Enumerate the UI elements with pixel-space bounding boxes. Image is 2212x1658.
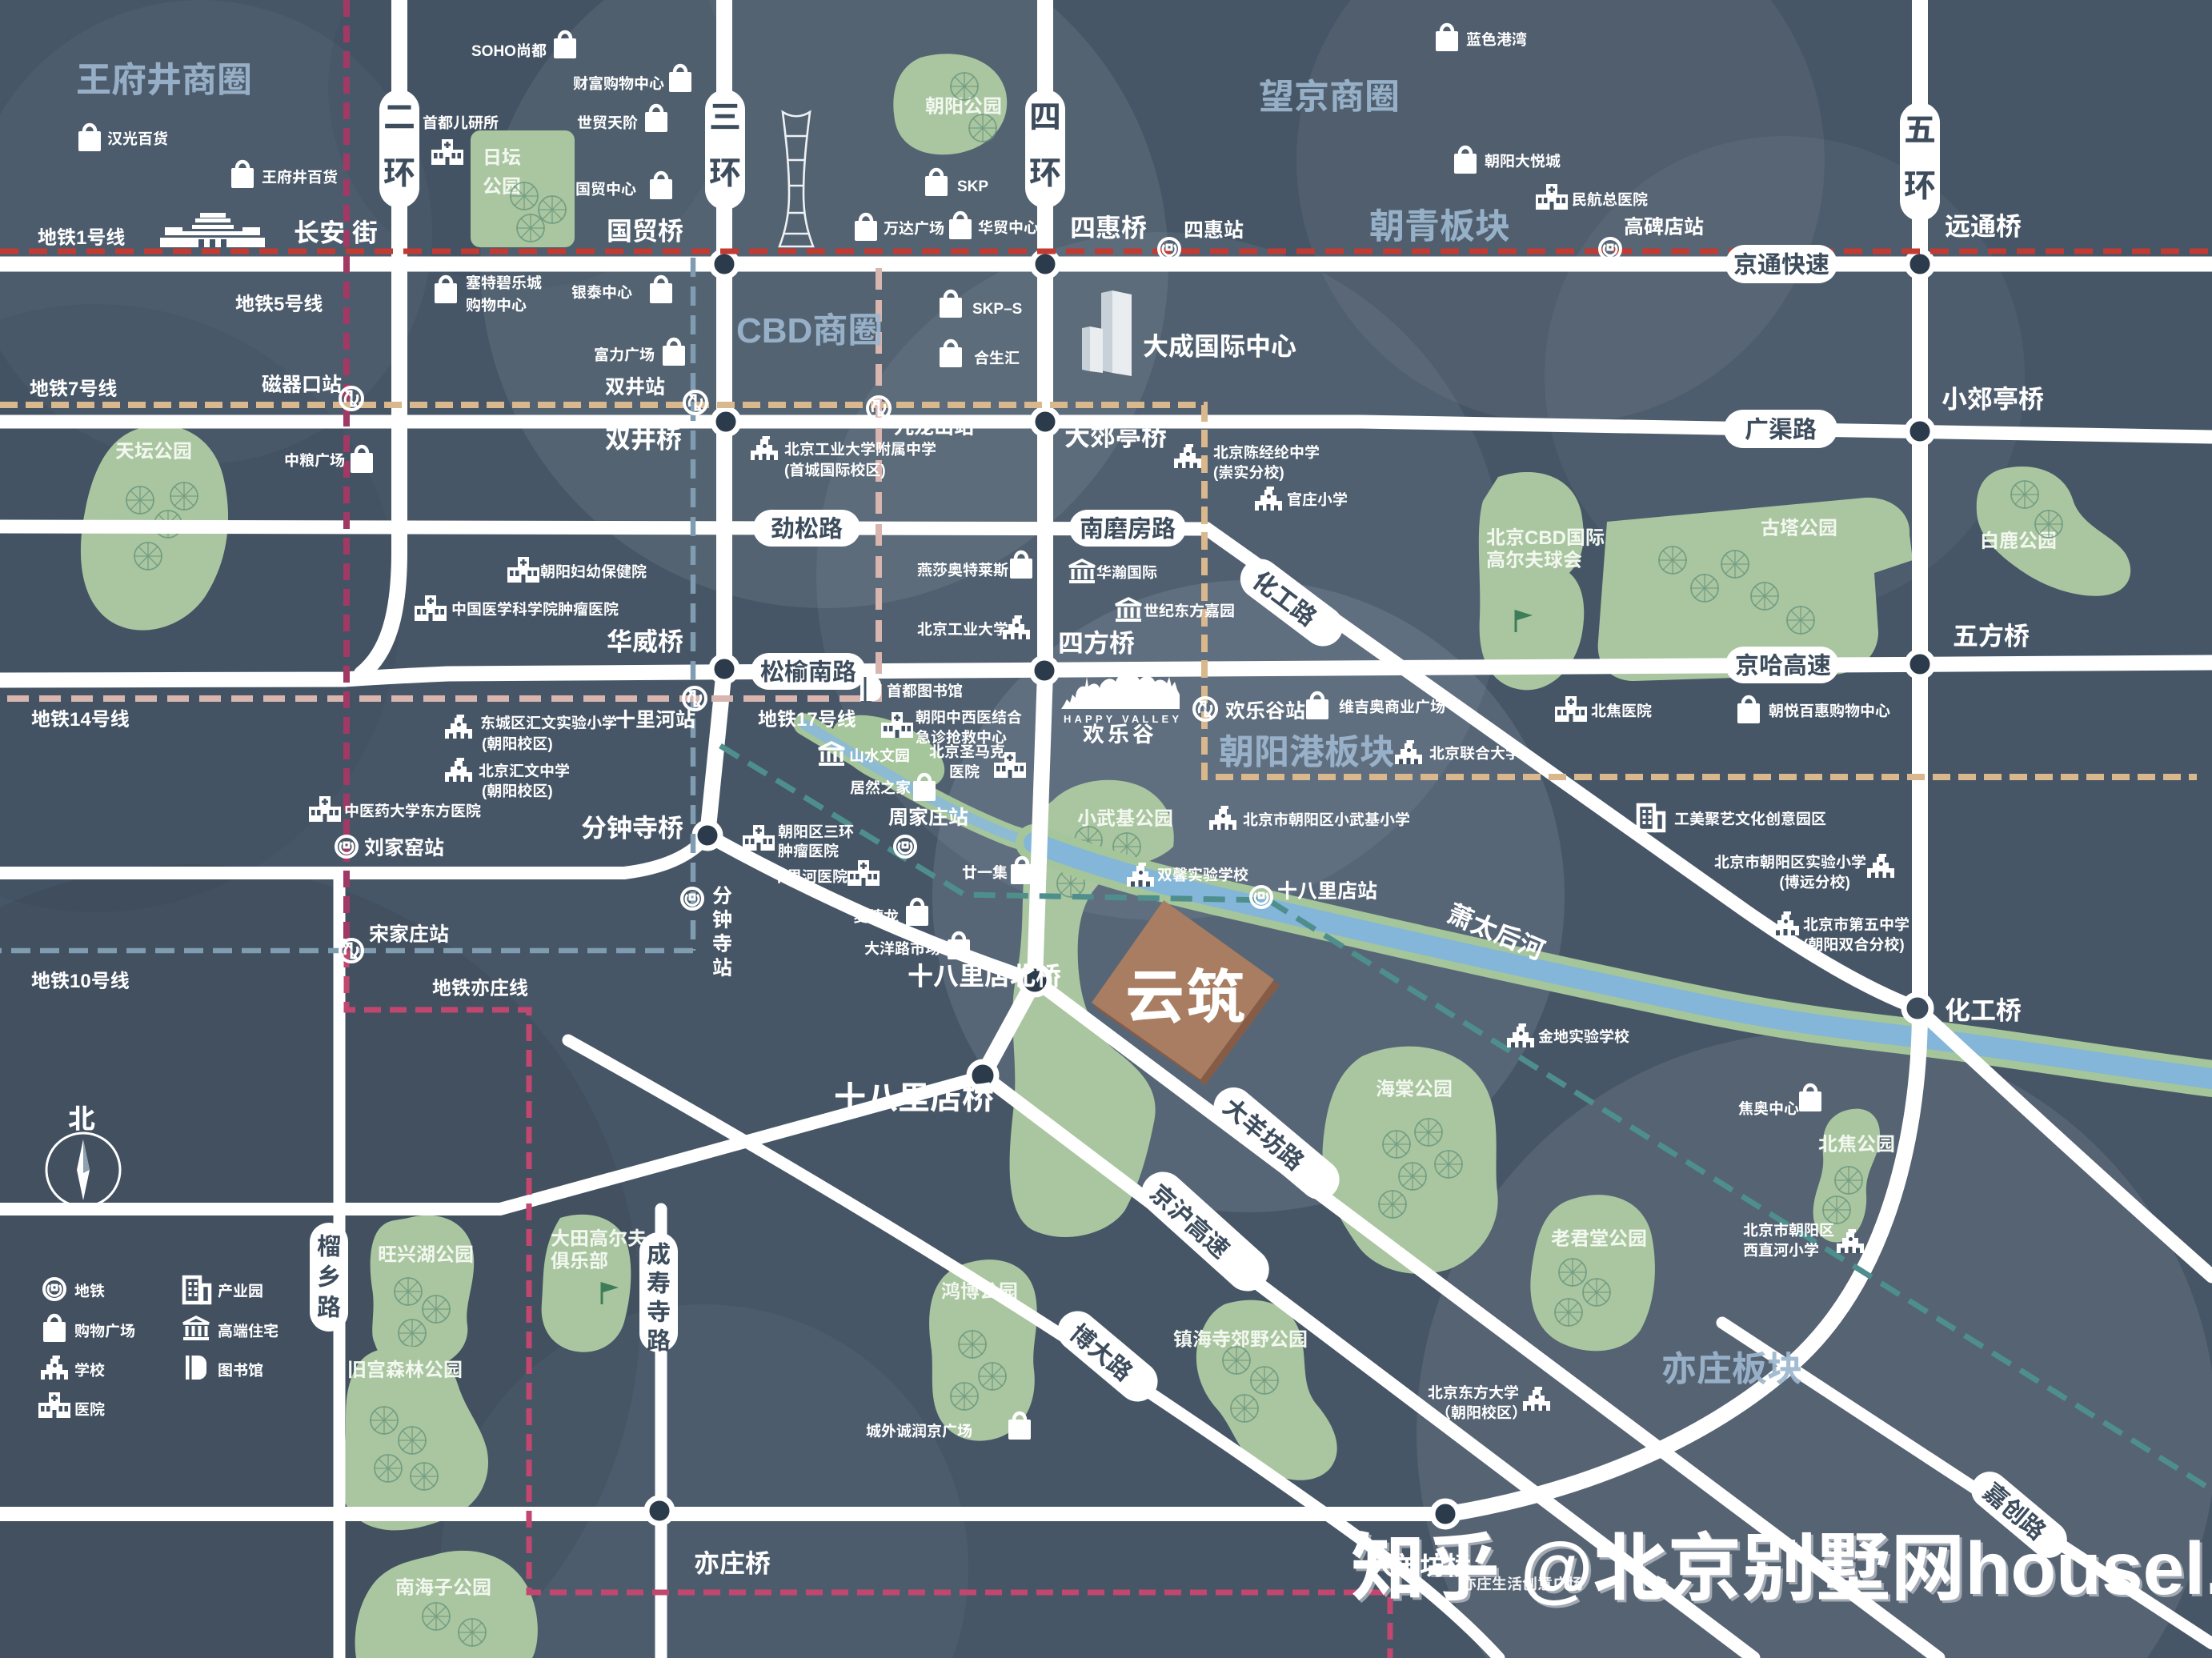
svg-text:老君堂公园: 老君堂公园 bbox=[1551, 1223, 1647, 1251]
svg-text:(朝阳校区): (朝阳校区) bbox=[482, 732, 553, 754]
svg-text:(崇实分校): (崇实分校) bbox=[1213, 461, 1284, 483]
svg-text:大郊亭桥: 大郊亭桥 bbox=[1064, 417, 1167, 454]
svg-text:(朝阳校区): (朝阳校区) bbox=[482, 779, 553, 801]
svg-text:海棠公园: 海棠公园 bbox=[1376, 1073, 1453, 1101]
svg-text:五: 五 bbox=[1904, 104, 1936, 150]
svg-text:焦奥中心: 焦奥中心 bbox=[1738, 1097, 1799, 1119]
svg-text:知乎 @北京别墅网housel...: 知乎 @北京别墅网housel... bbox=[1351, 1508, 2212, 1616]
svg-text:产业园: 产业园 bbox=[218, 1280, 263, 1301]
svg-text:十八里店站: 十八里店站 bbox=[1277, 875, 1377, 904]
svg-text:公园: 公园 bbox=[483, 170, 521, 198]
svg-text:城外诚润京广场: 城外诚润京广场 bbox=[866, 1420, 972, 1441]
svg-text:金地实验学校: 金地实验学校 bbox=[1538, 1025, 1629, 1047]
svg-text:山水文园: 山水文园 bbox=[849, 744, 910, 766]
svg-text:学校: 学校 bbox=[74, 1359, 105, 1380]
svg-text:北京陈经纶中学: 北京陈经纶中学 bbox=[1213, 441, 1320, 463]
svg-text:欢乐谷: 欢乐谷 bbox=[1083, 717, 1157, 748]
svg-text:医院: 医院 bbox=[949, 760, 980, 782]
svg-text:塞特碧乐城: 塞特碧乐城 bbox=[466, 271, 542, 293]
svg-text:地铁17号线: 地铁17号线 bbox=[758, 703, 856, 731]
svg-text:大洋路市场: 大洋路市场 bbox=[864, 937, 940, 959]
svg-text:王府井百货: 王府井百货 bbox=[262, 166, 338, 187]
svg-text:购物广场: 购物广场 bbox=[74, 1320, 135, 1341]
svg-text:环: 环 bbox=[709, 147, 741, 194]
svg-text:购物中心: 购物中心 bbox=[466, 294, 527, 315]
svg-text:北焦公园: 北焦公园 bbox=[1818, 1128, 1895, 1156]
svg-text:十八里店北桥: 十八里店北桥 bbox=[908, 956, 1061, 993]
svg-text:高碑店站: 高碑店站 bbox=[1624, 211, 1704, 240]
svg-text:双馨实验学校: 双馨实验学校 bbox=[1157, 863, 1248, 885]
svg-text:天坛公园: 天坛公园 bbox=[115, 435, 192, 463]
svg-text:国贸中心: 国贸中心 bbox=[575, 178, 636, 199]
svg-text:肿瘤医院: 肿瘤医院 bbox=[778, 839, 839, 861]
svg-text:廿一集: 廿一集 bbox=[962, 861, 1008, 883]
svg-text:环: 环 bbox=[1029, 147, 1061, 194]
svg-text:远通桥: 远通桥 bbox=[1945, 206, 2022, 243]
svg-text:(首城国际校区): (首城国际校区) bbox=[784, 459, 886, 480]
svg-text:长安 街: 长安 街 bbox=[294, 213, 378, 250]
svg-text:亦庄桥: 亦庄桥 bbox=[694, 1544, 771, 1580]
svg-text:十里河医院: 十里河医院 bbox=[771, 865, 848, 887]
svg-text:SOHO尚都: SOHO尚都 bbox=[471, 39, 547, 61]
svg-text:北京联合大学: 北京联合大学 bbox=[1429, 742, 1521, 763]
svg-text:朝阳港板块: 朝阳港板块 bbox=[1219, 723, 1395, 775]
svg-text:双井站: 双井站 bbox=[605, 371, 665, 400]
svg-text:劲松路: 劲松路 bbox=[771, 509, 843, 544]
svg-text:燕莎奥特莱斯: 燕莎奥特莱斯 bbox=[917, 559, 1008, 580]
svg-text:地铁7号线: 地铁7号线 bbox=[30, 373, 117, 401]
svg-text:九龙山站: 九龙山站 bbox=[894, 411, 974, 440]
svg-text:刘家窑站: 刘家窑站 bbox=[364, 832, 444, 861]
svg-text:医院: 医院 bbox=[74, 1398, 105, 1420]
svg-text:华威桥: 华威桥 bbox=[607, 622, 683, 659]
svg-text:分钟寺桥: 分钟寺桥 bbox=[581, 808, 683, 845]
svg-text:周家庄站: 周家庄站 bbox=[888, 802, 968, 831]
svg-text:国贸桥: 国贸桥 bbox=[607, 211, 683, 248]
svg-text:民航总医院: 民航总医院 bbox=[1572, 188, 1648, 210]
svg-text:北京汇文中学: 北京汇文中学 bbox=[479, 759, 570, 781]
svg-text:西直河小学: 西直河小学 bbox=[1743, 1239, 1819, 1260]
svg-text:中粮广场: 中粮广场 bbox=[284, 449, 345, 471]
svg-text:汉光百货: 汉光百货 bbox=[107, 127, 168, 149]
svg-text:三: 三 bbox=[709, 91, 741, 138]
svg-text:北: 北 bbox=[68, 1097, 95, 1136]
svg-text:磁器口站: 磁器口站 bbox=[262, 369, 342, 398]
svg-text:银泰中心: 银泰中心 bbox=[571, 281, 632, 302]
svg-text:蓝色港湾: 蓝色港湾 bbox=[1466, 28, 1527, 50]
svg-text:四惠站: 四惠站 bbox=[1184, 214, 1244, 243]
svg-text:广渠路: 广渠路 bbox=[1745, 410, 1817, 445]
svg-text:首都图书馆: 首都图书馆 bbox=[887, 679, 963, 701]
svg-text:北京工业大学: 北京工业大学 bbox=[917, 618, 1008, 639]
svg-text:四: 四 bbox=[1029, 91, 1061, 138]
svg-text:望京商圈: 望京商圈 bbox=[1259, 68, 1400, 119]
svg-text:华贸中心: 华贸中心 bbox=[978, 216, 1039, 238]
svg-text:宋家庄站: 宋家庄站 bbox=[369, 919, 449, 947]
svg-text:站: 站 bbox=[712, 952, 732, 981]
svg-text:北京圣马克: 北京圣马克 bbox=[929, 740, 1005, 762]
svg-text:小郊亭桥: 小郊亭桥 bbox=[1942, 379, 2044, 416]
svg-text:工美聚艺文化创意园区: 工美聚艺文化创意园区 bbox=[1674, 807, 1826, 829]
svg-text:路: 路 bbox=[317, 1288, 341, 1323]
svg-text:北京市朝阳区小武基小学: 北京市朝阳区小武基小学 bbox=[1243, 808, 1410, 830]
svg-text:路: 路 bbox=[647, 1321, 671, 1356]
svg-text:日坛: 日坛 bbox=[483, 142, 521, 170]
svg-text:地铁亦庄线: 地铁亦庄线 bbox=[432, 972, 528, 1000]
svg-text:亦庄板块: 亦庄板块 bbox=[1661, 1340, 1802, 1392]
svg-text:朝悦百惠购物中心: 朝悦百惠购物中心 bbox=[1769, 699, 1890, 721]
svg-text:高端住宅: 高端住宅 bbox=[218, 1320, 279, 1341]
svg-text:朝阳公园: 朝阳公园 bbox=[925, 90, 1002, 118]
svg-text:居然之家: 居然之家 bbox=[850, 776, 911, 798]
svg-text:万达广场: 万达广场 bbox=[884, 217, 944, 238]
svg-text:朝青板块: 朝青板块 bbox=[1369, 198, 1510, 249]
svg-text:财富购物中心: 财富购物中心 bbox=[573, 72, 664, 94]
svg-text:北京市朝阳区: 北京市朝阳区 bbox=[1743, 1219, 1834, 1240]
svg-text:地铁5号线: 地铁5号线 bbox=[235, 288, 323, 316]
svg-text:俱乐部: 俱乐部 bbox=[551, 1245, 608, 1273]
svg-text:二: 二 bbox=[383, 91, 415, 138]
svg-text:古塔公园: 古塔公园 bbox=[1761, 512, 1837, 540]
svg-text:地铁10号线: 地铁10号线 bbox=[31, 965, 130, 993]
svg-text:中国医学科学院肿瘤医院: 中国医学科学院肿瘤医院 bbox=[451, 598, 619, 619]
svg-text:十八里店桥: 十八里店桥 bbox=[834, 1072, 994, 1119]
svg-text:北焦医院: 北焦医院 bbox=[1591, 699, 1652, 721]
svg-text:京通快速: 京通快速 bbox=[1733, 245, 1829, 280]
svg-text:合生汇: 合生汇 bbox=[974, 346, 1020, 368]
svg-text:北京市第五中学: 北京市第五中学 bbox=[1803, 913, 1909, 935]
svg-text:大成国际中心: 大成国际中心 bbox=[1143, 326, 1296, 363]
svg-text:首都儿研所: 首都儿研所 bbox=[423, 111, 499, 133]
svg-text:化工桥: 化工桥 bbox=[1945, 991, 2022, 1027]
svg-text:双井桥: 双井桥 bbox=[605, 419, 682, 456]
svg-text:南海子公园: 南海子公园 bbox=[395, 1572, 491, 1600]
svg-text:（朝阳校区）: （朝阳校区） bbox=[1436, 1401, 1527, 1423]
svg-text:旧宫森林公园: 旧宫森林公园 bbox=[347, 1354, 463, 1382]
svg-text:维吉奥商业广场: 维吉奥商业广场 bbox=[1339, 695, 1445, 717]
svg-text:高尔夫球会: 高尔夫球会 bbox=[1486, 544, 1582, 572]
svg-text:环: 环 bbox=[383, 147, 415, 194]
svg-text:官庄小学: 官庄小学 bbox=[1287, 488, 1348, 510]
svg-text:华瀚国际: 华瀚国际 bbox=[1096, 561, 1157, 583]
svg-text:地铁1号线: 地铁1号线 bbox=[38, 222, 125, 250]
svg-text:富力广场: 富力广场 bbox=[594, 343, 655, 365]
svg-text:中医药大学东方医院: 中医药大学东方医院 bbox=[344, 799, 481, 821]
svg-text:环: 环 bbox=[1904, 160, 1936, 206]
svg-text:王府井商圈: 王府井商圈 bbox=[76, 51, 252, 102]
svg-text:五方桥: 五方桥 bbox=[1953, 616, 2030, 653]
svg-text:四惠桥: 四惠桥 bbox=[1070, 208, 1147, 245]
svg-text:(朝阳双合分校): (朝阳双合分校) bbox=[1803, 933, 1905, 955]
svg-text:朝阳妇幼保健院: 朝阳妇幼保健院 bbox=[540, 560, 647, 582]
svg-text:朝阳区三环: 朝阳区三环 bbox=[778, 820, 854, 842]
svg-text:世纪东方嘉园: 世纪东方嘉园 bbox=[1144, 599, 1235, 621]
svg-text:白鹿公园: 白鹿公园 bbox=[1980, 525, 2057, 553]
svg-text:SKP–S: SKP–S bbox=[972, 297, 1022, 318]
svg-text:图书馆: 图书馆 bbox=[218, 1359, 263, 1380]
svg-text:北京市朝阳区实验小学: 北京市朝阳区实验小学 bbox=[1714, 851, 1866, 872]
svg-text:麦德龙: 麦德龙 bbox=[853, 905, 899, 927]
svg-text:CBD商圈: CBD商圈 bbox=[736, 302, 883, 353]
svg-text:地铁14号线: 地铁14号线 bbox=[31, 703, 130, 731]
svg-text:世贸天阶: 世贸天阶 bbox=[577, 111, 638, 133]
svg-text:旺兴湖公园: 旺兴湖公园 bbox=[378, 1239, 474, 1267]
svg-text:松榆南路: 松榆南路 bbox=[760, 652, 856, 687]
svg-text:京哈高速: 京哈高速 bbox=[1735, 646, 1831, 681]
svg-text:东城区汇文实验小学: 东城区汇文实验小学 bbox=[480, 711, 617, 733]
svg-text:南磨房路: 南磨房路 bbox=[1080, 509, 1176, 544]
svg-text:朝阳大悦城: 朝阳大悦城 bbox=[1485, 150, 1561, 171]
svg-text:十里河站: 十里河站 bbox=[615, 704, 695, 733]
svg-text:地铁: 地铁 bbox=[74, 1280, 105, 1301]
svg-text:朝阳中西医结合: 朝阳中西医结合 bbox=[916, 706, 1022, 727]
svg-text:云筑: 云筑 bbox=[1125, 950, 1247, 1035]
svg-text:北京东方大学: 北京东方大学 bbox=[1428, 1381, 1519, 1403]
svg-text:(博远分校): (博远分校) bbox=[1779, 871, 1850, 892]
svg-text:欢乐谷站: 欢乐谷站 bbox=[1225, 695, 1305, 724]
svg-text:SKP: SKP bbox=[957, 174, 988, 196]
svg-text:北京工业大学附属中学: 北京工业大学附属中学 bbox=[784, 438, 936, 459]
svg-text:四方桥: 四方桥 bbox=[1058, 623, 1135, 660]
